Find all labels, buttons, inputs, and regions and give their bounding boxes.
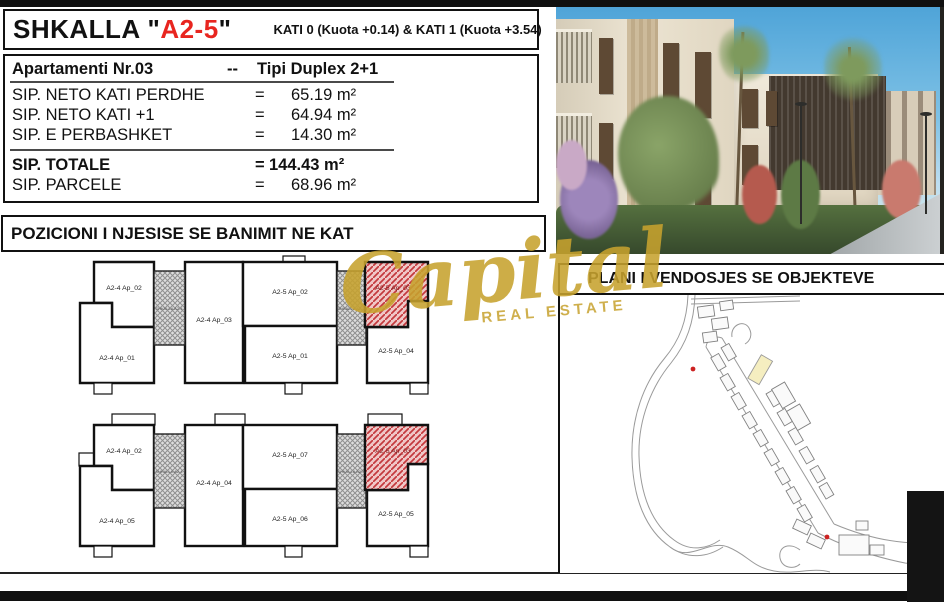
unit-label: A2-4 Ap_03 bbox=[196, 317, 232, 324]
unit-label: A2-5 Ap_02 bbox=[272, 289, 308, 296]
top-black-bar bbox=[0, 0, 944, 7]
map-buildings bbox=[697, 300, 884, 555]
stairwell-label: SHKALLA A2-5 bbox=[337, 469, 365, 474]
plan-lower-feet bbox=[94, 546, 428, 557]
row-label: SIP. NETO KATI +1 bbox=[12, 106, 155, 124]
project-render-photo bbox=[556, 7, 944, 254]
unit-label: A2-5 Ap_06 bbox=[272, 516, 308, 523]
map-marker bbox=[825, 535, 830, 540]
photo-lamp-post bbox=[800, 106, 802, 225]
photo-flower-bush bbox=[556, 140, 587, 189]
unit-code: A2-5 bbox=[160, 14, 218, 44]
map-roads bbox=[632, 295, 944, 572]
site-plan-section-header: PLANI I VENDOSJES SE OBJEKTEVE bbox=[558, 263, 944, 295]
table-row: SIP. E PERBASHKET = 14.30 m² bbox=[5, 125, 537, 145]
unit-label: A2-5 Ap_04 bbox=[378, 348, 414, 355]
photo-window bbox=[742, 89, 758, 129]
photo-window bbox=[599, 38, 613, 94]
site-plan-map bbox=[558, 295, 944, 573]
equals-sign: = bbox=[255, 155, 265, 175]
brochure-page: { "title_block": { "name": "SHKALLA", "q… bbox=[0, 0, 944, 602]
photo-tree bbox=[719, 22, 769, 86]
stairwell-label: SHKALLA A2-5 bbox=[337, 306, 365, 311]
row-value: 64.94 m² bbox=[291, 105, 356, 125]
equals-sign: = bbox=[255, 175, 265, 195]
highlighted-unit-label: A2-5 Ap_03 bbox=[375, 285, 411, 292]
apartment-table-header: Apartamenti Nr.03 -- Tipi Duplex 2+1 bbox=[5, 59, 537, 79]
equals-sign: = bbox=[255, 105, 265, 125]
unit-label: A2-4 Ap_01 bbox=[99, 355, 135, 362]
row-label: SIP. PARCELE bbox=[12, 176, 121, 194]
site-plan-title: PLANI I VENDOSJES SE OBJEKTEVE bbox=[588, 270, 874, 288]
position-title: POZICIONI I NJESISE SE BANIMIT NE KAT bbox=[11, 224, 354, 244]
map-marker bbox=[691, 367, 696, 372]
equals-sign: = bbox=[255, 85, 265, 105]
unit-label: A2-4 Ap_04 bbox=[196, 480, 232, 487]
unit-label: A2-5 Ap_01 bbox=[272, 353, 308, 360]
apartment-name: Apartamenti Nr.03 bbox=[12, 60, 153, 78]
photo-dark-edge bbox=[940, 7, 944, 254]
floor-plan-drawing: A2-4 Ap_02 A2-4 Ap_01 A2-4 Ap_03 A2-5 Ap… bbox=[55, 248, 495, 578]
row-label: SIP. TOTALE bbox=[12, 156, 110, 174]
row-value: 144.43 m² bbox=[269, 155, 344, 175]
table-row: SIP. NETO KATI +1 = 64.94 m² bbox=[5, 105, 537, 125]
unit-label: A2-5 Ap_05 bbox=[378, 511, 414, 518]
bottom-black-bar bbox=[0, 591, 944, 601]
table-row: SIP. NETO KATI PERDHE = 65.19 m² bbox=[5, 85, 537, 105]
row-value: 68.96 m² bbox=[291, 175, 356, 195]
table-row-total: SIP. TOTALE = 144.43 m² bbox=[5, 155, 537, 175]
position-section-header: POZICIONI I NJESISE SE BANIMIT NE KAT bbox=[1, 215, 546, 252]
table-rule bbox=[10, 149, 394, 151]
page-title: SHKALLA "A2-5" bbox=[13, 14, 232, 45]
level-info: KATI 0 (Kuota +0.14) & KATI 1 (Kuota +3.… bbox=[274, 22, 542, 37]
unit-label: A2-4 Ap_02 bbox=[106, 285, 142, 292]
unit-label: A2-4 Ap_02 bbox=[106, 448, 142, 455]
stair-name: SHKALLA bbox=[13, 14, 140, 44]
plan-upper-feet bbox=[94, 383, 428, 394]
apartment-type: Tipi Duplex 2+1 bbox=[257, 59, 378, 79]
row-value: 14.30 m² bbox=[291, 125, 356, 145]
quote-open: " bbox=[147, 14, 160, 44]
photo-balcony-railing bbox=[556, 29, 592, 84]
photo-window bbox=[766, 91, 778, 126]
unit-label: A2-5 Ap_07 bbox=[272, 452, 308, 459]
highlighted-unit-label: A2-5 Ap_03 bbox=[375, 448, 411, 455]
quote-close: " bbox=[219, 14, 232, 44]
title-block: SHKALLA "A2-5" KATI 0 (Kuota +0.14) & KA… bbox=[3, 9, 539, 50]
stairwell-label: SHKALLA A2-4 bbox=[155, 306, 183, 311]
site-plan-drawing bbox=[560, 295, 944, 573]
row-label: SIP. NETO KATI PERDHE bbox=[12, 86, 205, 104]
row-value: 65.19 m² bbox=[291, 85, 356, 105]
table-row: SIP. PARCELE = 68.96 m² bbox=[5, 175, 537, 195]
apartment-table: Apartamenti Nr.03 -- Tipi Duplex 2+1 SIP… bbox=[3, 54, 539, 203]
map-highlighted-building bbox=[748, 355, 773, 385]
row-label: SIP. E PERBASHKET bbox=[12, 126, 172, 144]
stairwell-label: SHKALLA A2-4 bbox=[155, 469, 183, 474]
bottom-right-black-block bbox=[907, 491, 944, 602]
photo-window bbox=[663, 43, 679, 104]
table-rule bbox=[10, 81, 394, 83]
photo-tree bbox=[824, 32, 882, 106]
photo-lamp-post bbox=[925, 116, 927, 215]
unit-label: A2-4 Ap_05 bbox=[99, 518, 135, 525]
header-dash: -- bbox=[227, 59, 238, 79]
equals-sign: = bbox=[255, 125, 265, 145]
